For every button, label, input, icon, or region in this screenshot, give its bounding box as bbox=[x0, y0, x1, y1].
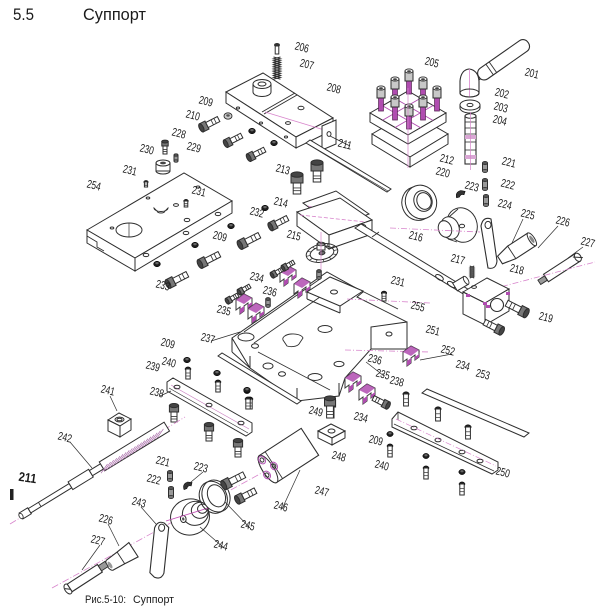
svg-text:211: 211 bbox=[18, 469, 38, 486]
svg-text:5.5: 5.5 bbox=[13, 5, 34, 24]
svg-text:Рис.5-10:: Рис.5-10: bbox=[85, 594, 126, 606]
svg-text:Суппорт: Суппорт bbox=[133, 594, 174, 606]
svg-text:Суппорт: Суппорт bbox=[83, 5, 146, 24]
